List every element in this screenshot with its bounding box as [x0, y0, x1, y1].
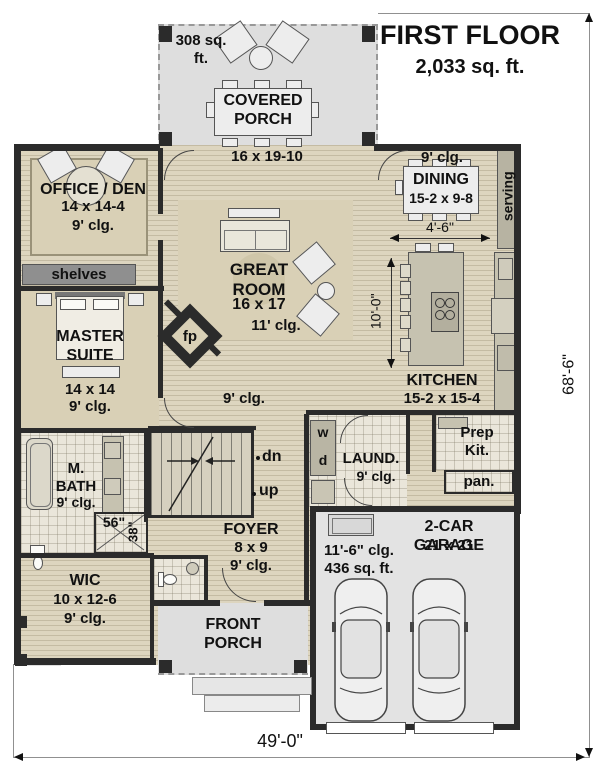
garage-area: 436 sq. ft. [318, 560, 400, 578]
toilet-icon [163, 574, 177, 585]
bench-icon [62, 366, 120, 378]
wall-segment [158, 288, 163, 398]
arrow-up-icon [585, 13, 593, 22]
kitchen-island-dim: 10'-0" [368, 281, 385, 341]
kitchen-label: KITCHEN [400, 372, 484, 391]
wall-segment [14, 286, 164, 291]
stairs-down-label: dn [262, 448, 292, 467]
width-dimension-label: 49'-0" [220, 731, 340, 752]
porch-area-label: 308 sq. ft. [172, 32, 230, 67]
garage-door [414, 722, 494, 734]
garage-dims: 21 x 21 [388, 537, 510, 555]
sink-icon [186, 562, 199, 575]
sofa-cushion [224, 230, 256, 250]
hall-ceiling-label: 9' clg. [214, 390, 274, 408]
laundry-ceiling: 9' clg. [344, 468, 408, 485]
wall-segment [144, 430, 148, 522]
foyer-ceiling: 9' clg. [218, 557, 284, 575]
master-suite-label: MASTER SUITE [40, 328, 140, 366]
wall-segment [150, 555, 208, 559]
sofa-cushion [255, 230, 287, 250]
stool-icon [400, 315, 411, 329]
wall-segment [148, 426, 256, 430]
post-icon [362, 132, 375, 146]
height-dimension-label: 68'-6" [561, 334, 580, 414]
prep-kitchen-label: Prep Kit. [452, 424, 502, 459]
round-table-icon [249, 46, 273, 70]
porch-steps [204, 695, 300, 712]
garage-shelf-inner [332, 518, 372, 534]
wic-ceiling: 9' clg. [30, 610, 140, 628]
master-suite-dims: 14 x 14 [40, 381, 140, 399]
post-icon [159, 132, 172, 146]
wall-segment [204, 555, 208, 603]
post-icon [159, 660, 172, 673]
foyer-dims: 8 x 9 [218, 539, 284, 557]
sink-icon [438, 243, 454, 252]
extension-line-top [378, 13, 590, 14]
pantry-label: pan. [452, 473, 506, 491]
master-bath-label: M. BATH [50, 460, 102, 495]
side-table-icon [317, 282, 335, 300]
stool-icon [400, 338, 411, 352]
serving-label: serving [500, 160, 517, 232]
console-table-icon [228, 208, 280, 218]
arrow-down-icon [585, 748, 593, 757]
post-icon [15, 616, 27, 628]
fireplace-label: fp [178, 328, 202, 346]
front-porch-label: FRONT PORCH [178, 616, 288, 654]
garage-ceiling: 11'-6" clg. [318, 542, 400, 560]
toilet-icon [33, 556, 43, 570]
pillow-icon [93, 299, 119, 310]
laundry-label: LAUND. [336, 450, 406, 468]
wall-segment [14, 144, 160, 151]
wall-segment [150, 555, 154, 660]
floor-plan: FIRST FLOOR 2,033 sq. ft. 68'-6" 49'-0" … [0, 0, 600, 777]
sink-icon [104, 442, 121, 459]
wic-label: WIC [30, 572, 140, 591]
arrow-down-icon [387, 359, 395, 368]
dimension-line-10-0 [391, 258, 392, 368]
dining-dim-4-6: 4'-6" [408, 219, 472, 236]
wall-segment [158, 240, 163, 290]
nightstand-icon [128, 293, 144, 306]
arrow-left-icon [390, 234, 399, 242]
wall-segment [152, 600, 220, 606]
dimension-line-right [589, 13, 590, 758]
master-bath-ceiling: 9' clg. [48, 494, 104, 511]
utility-sink-icon [311, 480, 335, 504]
shelves-label: shelves [22, 266, 136, 284]
leader-dot [252, 492, 256, 496]
wall-segment [14, 144, 21, 665]
kitchen-dims: 15-2 x 15-4 [398, 390, 486, 408]
dining-dims: 15-2 x 9-8 [403, 190, 479, 207]
stool-icon [400, 281, 411, 295]
dimension-line-bottom [13, 757, 590, 758]
office-den-dims: 14 x 14-4 [38, 198, 148, 216]
stairs-break-line [151, 433, 251, 515]
page-title: FIRST FLOOR [368, 20, 572, 52]
wall-segment [306, 410, 520, 415]
great-room-ceiling: 11' clg. [238, 317, 314, 335]
dimension-line-4-6 [390, 238, 490, 239]
leader-dot [256, 456, 260, 460]
wall-segment [406, 414, 410, 474]
dining-label: DINING [403, 171, 479, 190]
nightstand-icon [36, 293, 52, 306]
post-icon [159, 26, 172, 42]
covered-porch-dims: 16 x 19-10 [222, 148, 312, 166]
wall-segment [14, 428, 149, 433]
chair-icon [286, 138, 302, 147]
chair-icon [395, 180, 403, 195]
washer-label: w [311, 424, 335, 441]
stairs-icon [148, 430, 254, 518]
cooktop-icon [431, 292, 459, 332]
arrow-up-icon [387, 258, 395, 267]
sink-icon [498, 258, 513, 280]
sink-icon [104, 478, 121, 495]
great-room-dims: 16 x 17 [214, 296, 304, 315]
sink-icon [415, 243, 431, 252]
office-den-ceiling: 9' clg. [38, 217, 148, 235]
chair-icon [222, 138, 238, 147]
arrow-left-icon [14, 753, 23, 761]
chair-icon [254, 138, 270, 147]
covered-porch-label: COVERED PORCH [214, 92, 312, 130]
foyer-label: FOYER [218, 521, 284, 540]
extension-line-left [13, 664, 14, 758]
oven-icon [497, 345, 515, 371]
post-icon [294, 660, 307, 673]
wall-segment [304, 414, 309, 604]
total-area-label: 2,033 sq. ft. [368, 56, 572, 80]
porch-steps [192, 677, 312, 695]
pillow-icon [60, 299, 86, 310]
great-room-label: GREAT ROOM [214, 260, 304, 300]
stool-icon [400, 264, 411, 278]
stairs-up-label: up [259, 482, 289, 501]
car-icon [410, 576, 468, 724]
post-icon [15, 654, 27, 666]
wall-segment [14, 658, 156, 665]
car-icon [332, 576, 390, 724]
wall-segment [158, 148, 163, 214]
arrow-right-icon [576, 753, 585, 761]
wall-segment [14, 553, 154, 558]
wic-dims: 10 x 12-6 [30, 591, 140, 609]
master-suite-ceiling: 9' clg. [40, 398, 140, 416]
dining-ceiling: 9' clg. [414, 149, 470, 167]
dryer-label: d [311, 452, 335, 469]
shower-depth-label: 38" [125, 517, 140, 547]
wall-segment [432, 414, 436, 472]
stool-icon [400, 298, 411, 312]
arrow-right-icon [481, 234, 490, 242]
